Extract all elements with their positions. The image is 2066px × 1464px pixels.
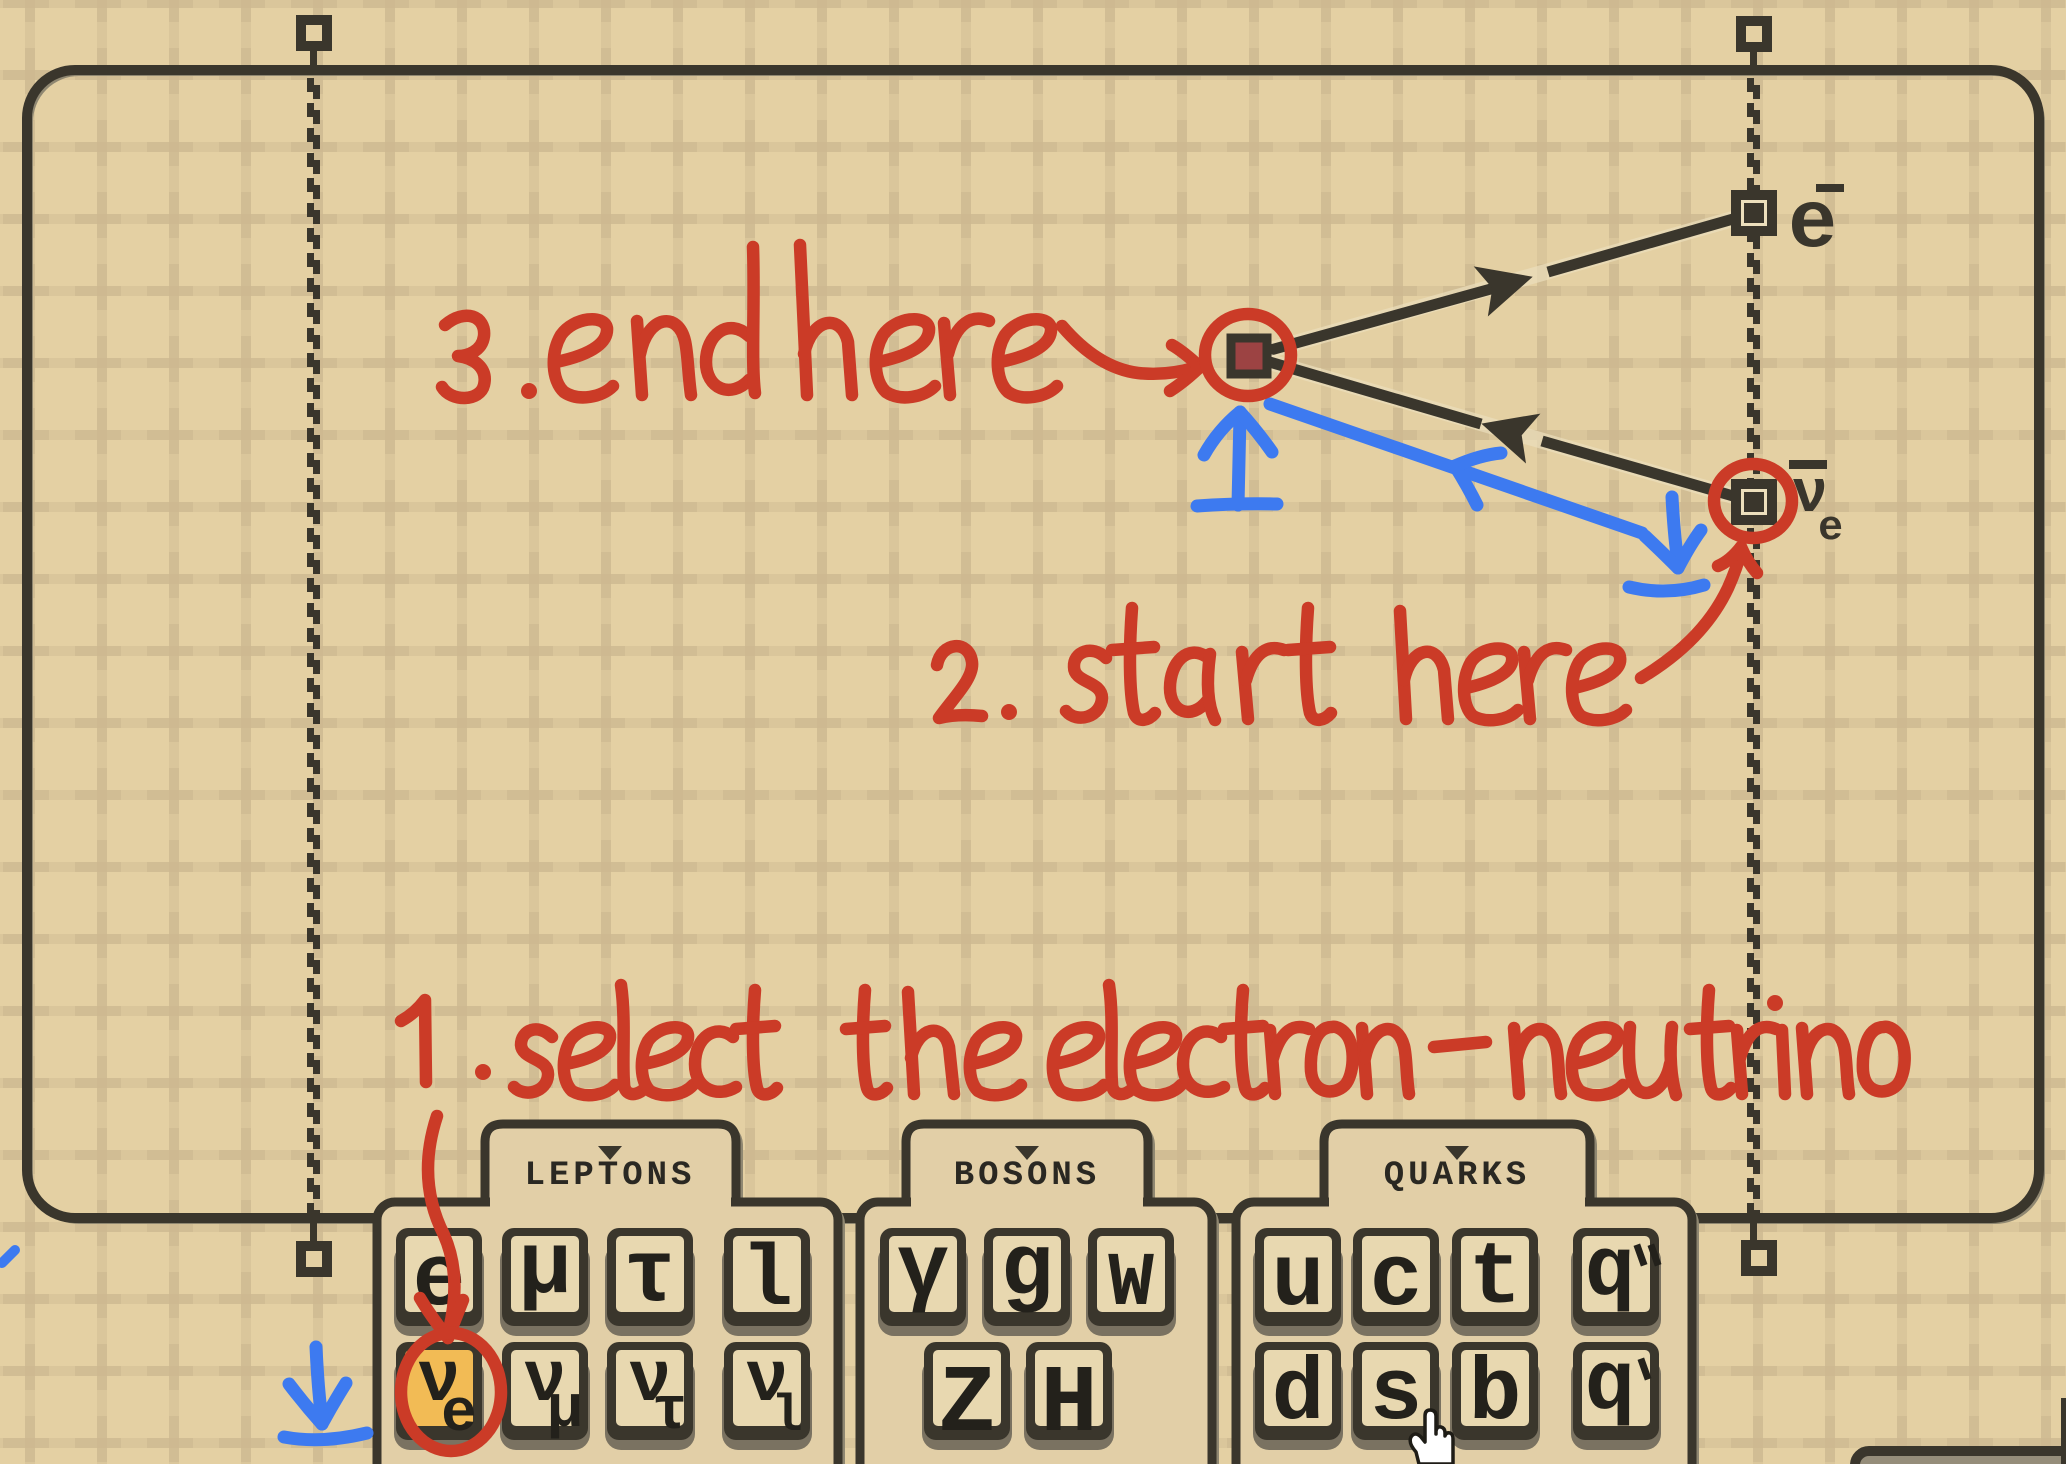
svg-text:s: s (1370, 1346, 1423, 1445)
svg-text:Z: Z (938, 1350, 996, 1459)
svg-text:c: c (1370, 1232, 1423, 1331)
svg-text:μ: μ (547, 1377, 583, 1445)
svg-text:e: e (1818, 504, 1843, 552)
svg-text:τ: τ (624, 1228, 677, 1327)
svg-text:H: H (1040, 1350, 1098, 1459)
svg-text:γ: γ (897, 1222, 950, 1321)
svg-text:d: d (1272, 1346, 1325, 1445)
svg-text:LEPTONS: LEPTONS (525, 1157, 696, 1195)
svg-text:BOSONS: BOSONS (954, 1157, 1100, 1195)
svg-text:b: b (1469, 1346, 1522, 1445)
svg-text:τ: τ (652, 1379, 688, 1447)
svg-text:g: g (1001, 1222, 1054, 1321)
svg-text:QUARKS: QUARKS (1384, 1157, 1530, 1195)
svg-text:u: u (1272, 1232, 1325, 1331)
svg-text:q: q (1585, 1225, 1635, 1320)
svg-text:μ: μ (519, 1220, 572, 1319)
svg-text:l: l (771, 1387, 802, 1446)
svg-text:l: l (741, 1232, 793, 1330)
svg-text:t: t (1469, 1230, 1522, 1329)
svg-text:W: W (1108, 1241, 1154, 1327)
svg-text:q: q (1585, 1339, 1635, 1434)
